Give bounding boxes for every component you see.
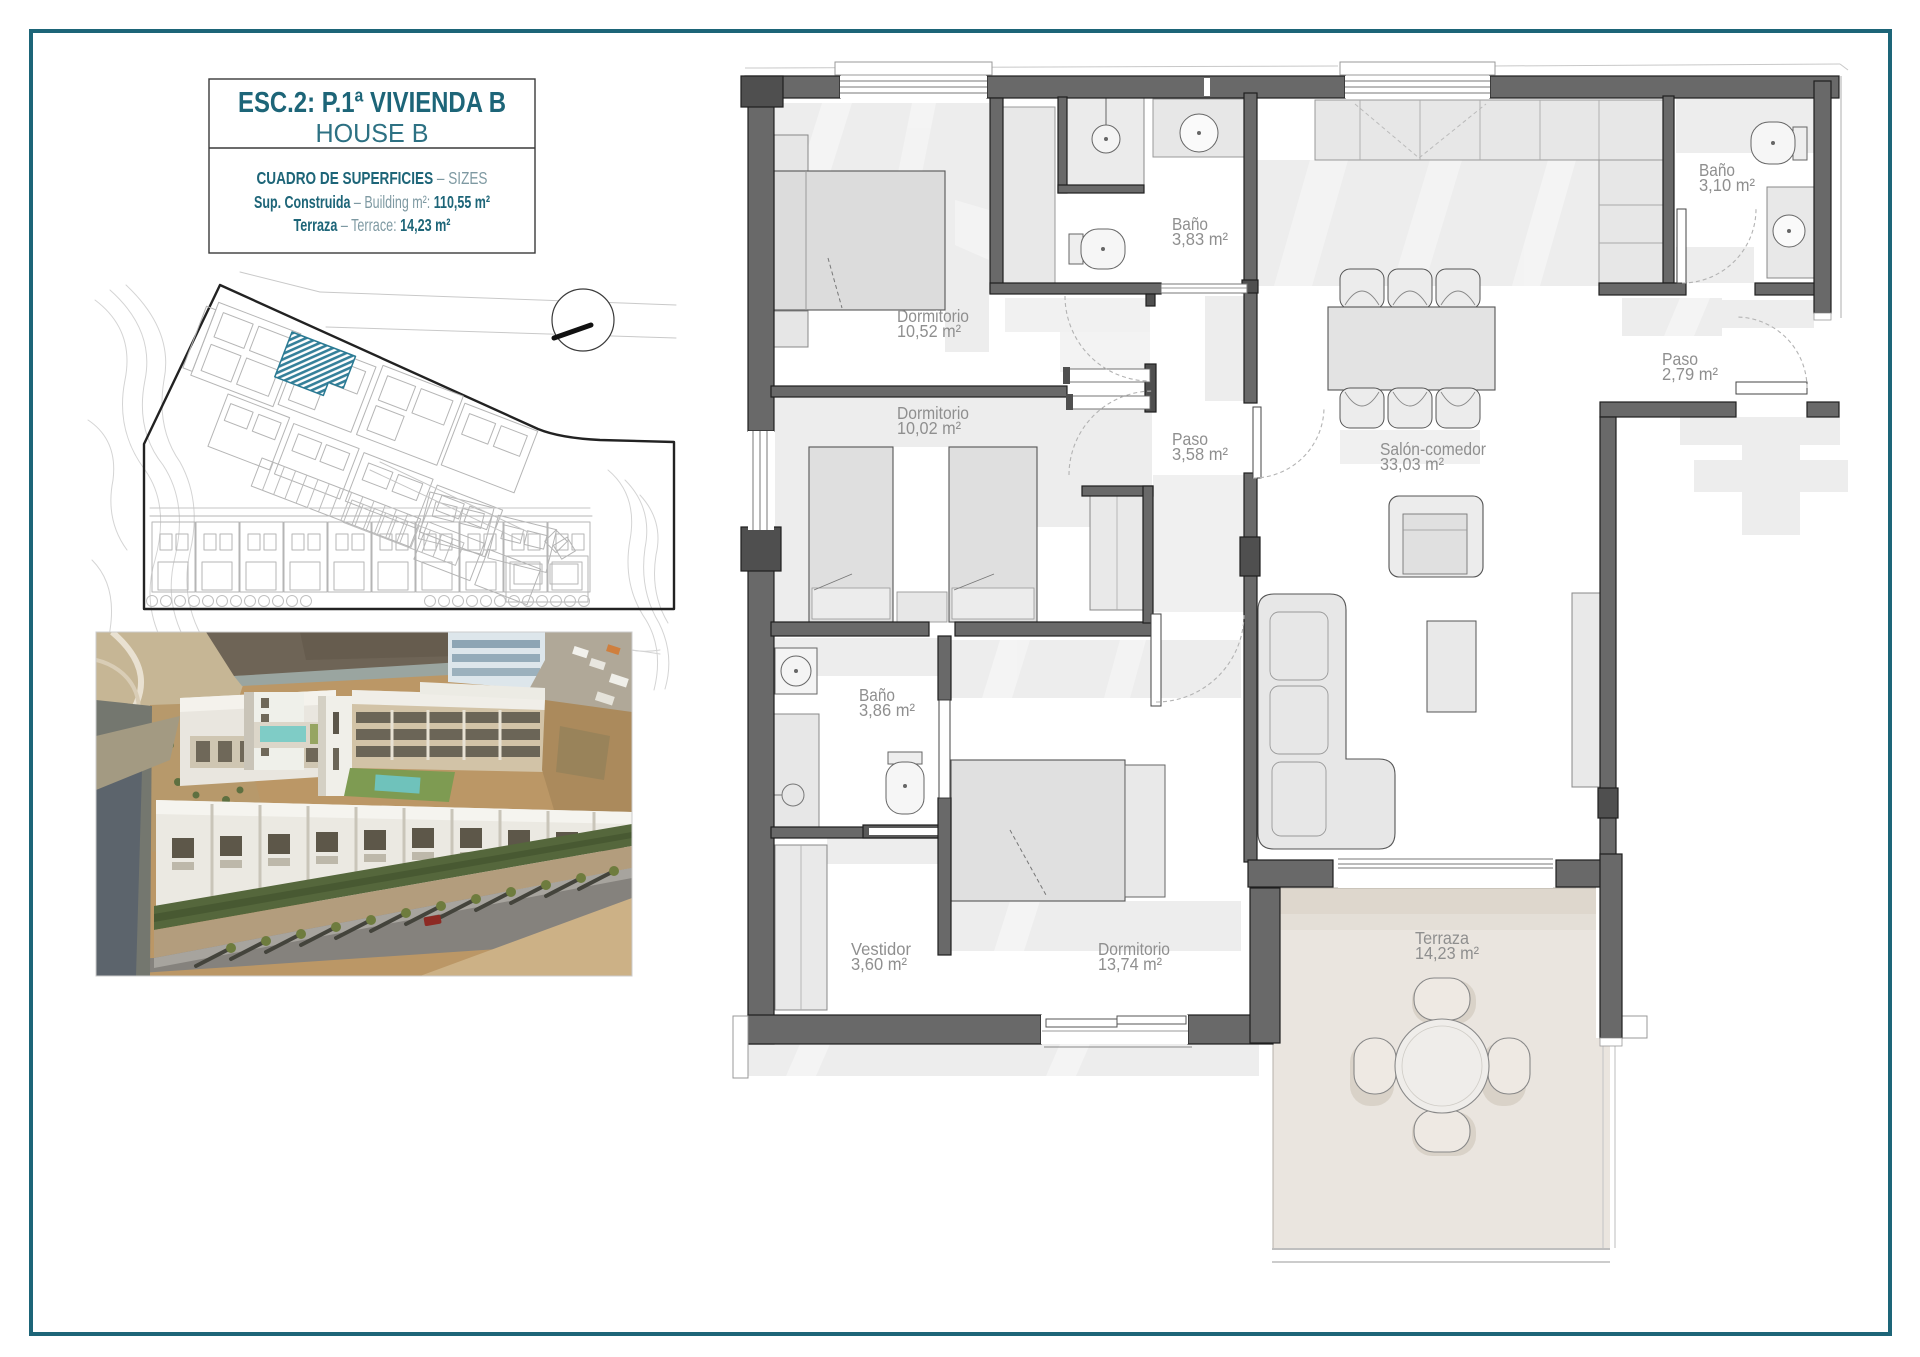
svg-text:HOUSE B: HOUSE B (316, 118, 429, 148)
svg-text:3,10 m²: 3,10 m² (1699, 175, 1755, 195)
svg-text:10,02 m²: 10,02 m² (897, 418, 961, 438)
svg-text:14,23 m²: 14,23 m² (1415, 943, 1479, 963)
svg-text:13,74 m²: 13,74 m² (1098, 954, 1162, 974)
svg-text:10,52 m²: 10,52 m² (897, 321, 961, 341)
svg-text:Sup. Construida – Building m²:: Sup. Construida – Building m²: 110,55 m² (254, 192, 490, 212)
svg-text:2,79 m²: 2,79 m² (1662, 364, 1718, 384)
svg-text:3,86 m²: 3,86 m² (859, 700, 915, 720)
svg-text:ESC.2: P.1ª VIVIENDA B: ESC.2: P.1ª VIVIENDA B (238, 87, 506, 119)
svg-text:3,60 m²: 3,60 m² (851, 954, 907, 974)
svg-text:33,03 m²: 33,03 m² (1380, 454, 1444, 474)
svg-text:Terraza – Terrace: 14,23 m²: Terraza – Terrace: 14,23 m² (294, 215, 451, 235)
svg-text:3,58 m²: 3,58 m² (1172, 444, 1228, 464)
svg-text:3,83 m²: 3,83 m² (1172, 229, 1228, 249)
svg-text:CUADRO DE SUPERFICIES – SIZES: CUADRO DE SUPERFICIES – SIZES (257, 168, 488, 188)
